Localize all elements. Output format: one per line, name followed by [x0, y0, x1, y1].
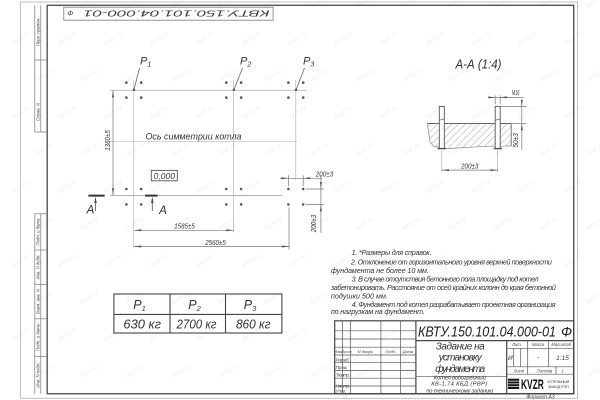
svg-text:Формат А3: Формат А3 [526, 394, 554, 400]
svg-text:Инв. N дубл.: Инв. N дубл. [36, 255, 41, 280]
svg-text:Котел водогрейный: Котел водогрейный [434, 375, 487, 382]
svg-text:фундамента: фундамента [435, 363, 485, 375]
svg-text:860 кг: 860 кг [236, 318, 271, 332]
svg-text:1360±5: 1360±5 [103, 129, 112, 150]
svg-text:50±3: 50±3 [511, 133, 520, 148]
svg-text:Ф: Ф [561, 324, 572, 340]
svg-text:200±3: 200±3 [315, 169, 333, 178]
svg-text:М16: М16 [512, 90, 520, 97]
svg-text:Ф: Ф [67, 9, 73, 18]
svg-text:Подп.: Подп. [385, 349, 396, 354]
svg-text:Масса: Масса [532, 342, 545, 347]
svg-text:по нагрузкам на фундамент.: по нагрузкам на фундамент. [331, 307, 425, 316]
svg-text:подушки 500 мм.: подушки 500 мм. [331, 291, 388, 300]
svg-text:630 кг: 630 кг [123, 318, 161, 332]
svg-text:по техническому заданию: по техническому заданию [426, 388, 494, 394]
svg-text:Разраб.: Разраб. [336, 357, 350, 362]
svg-text:ЗАВОД РЭП: ЗАВОД РЭП [548, 384, 569, 389]
svg-text:И: И [508, 355, 513, 362]
svg-text:Лит.: Лит. [511, 342, 522, 347]
svg-text:А: А [86, 204, 95, 216]
svg-text:Лист: Лист [513, 368, 525, 373]
svg-text:Подп. и дата: Подп. и дата [36, 323, 41, 351]
svg-text:А: А [158, 205, 167, 217]
svg-text:установку: установку [438, 353, 483, 364]
svg-text:Задание на: Задание на [436, 342, 485, 353]
svg-text:КВТУ.150.101.04.000-01: КВТУ.150.101.04.000-01 [83, 9, 269, 18]
svg-text:КВ-1,74 КБД (РВР): КВ-1,74 КБД (РВР) [431, 382, 487, 388]
svg-text:200±3: 200±3 [309, 215, 318, 233]
svg-text:Ось симметрии котла: Ось симметрии котла [146, 132, 242, 143]
svg-text:А-А (1:4): А-А (1:4) [455, 58, 502, 72]
svg-text:KVZR: KVZR [521, 376, 544, 392]
svg-text:1. *Размеры для справок.: 1. *Размеры для справок. [352, 248, 432, 257]
svg-text:Взам. инв. N: Взам. инв. N [36, 288, 41, 314]
svg-text:2560±5: 2560±5 [204, 238, 226, 247]
svg-text:1:15: 1:15 [556, 355, 569, 362]
svg-text:Лист: Лист [340, 349, 352, 354]
svg-text:КВТУ.150.101.04.000-01: КВТУ.150.101.04.000-01 [418, 324, 556, 341]
svg-text:Листов: Листов [536, 368, 553, 373]
svg-text:0,000: 0,000 [154, 171, 176, 181]
svg-text:1585±5: 1585±5 [174, 222, 195, 231]
svg-text:Пров.: Пров. [336, 365, 348, 370]
svg-text:Справ. N: Справ. N [36, 102, 41, 121]
svg-text:Перв. примен.: Перв. примен. [36, 18, 41, 47]
svg-text:Инв. N подл.: Инв. N подл. [36, 362, 41, 387]
svg-text:Утв.: Утв. [336, 389, 346, 394]
svg-text:Масштаб: Масштаб [551, 342, 571, 347]
svg-text:Т.контр.: Т.контр. [336, 373, 350, 378]
svg-text:200±3: 200±3 [460, 161, 478, 170]
svg-text:Подп. и дата: Подп. и дата [36, 218, 41, 246]
svg-text:1: 1 [562, 368, 564, 373]
svg-text:N докум.: N докум. [358, 349, 374, 354]
svg-text:Дата: Дата [402, 349, 414, 354]
svg-text:2700 кг: 2700 кг [176, 318, 217, 332]
